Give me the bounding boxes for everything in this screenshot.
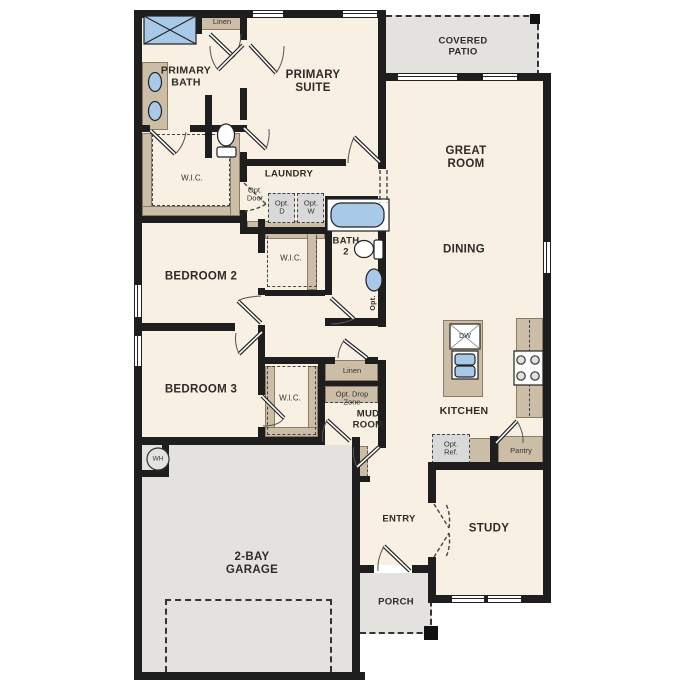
- wall: [325, 318, 378, 326]
- porch-post: [424, 626, 438, 640]
- label-kitchen: KITCHEN: [440, 406, 489, 418]
- label-opt-d: Opt. D: [275, 200, 289, 217]
- label-opt-ref: Opt. Ref.: [444, 441, 458, 458]
- window: [451, 595, 485, 603]
- wall: [325, 381, 378, 386]
- window: [543, 241, 551, 274]
- wall: [134, 672, 365, 680]
- wall: [258, 288, 265, 295]
- wall: [134, 437, 322, 445]
- label-bath-2: BATH 2: [333, 236, 360, 257]
- wall: [265, 290, 325, 296]
- wall: [240, 152, 247, 182]
- label-linen-hall: Linen: [343, 367, 361, 375]
- wall: [378, 10, 386, 169]
- wall: [142, 470, 169, 477]
- label-bedroom-3: BEDROOM 3: [165, 384, 237, 397]
- window: [252, 10, 284, 18]
- label-great-room: GREAT ROOM: [446, 145, 487, 171]
- wall: [134, 216, 247, 223]
- label-primary-bath: PRIMARY BATH: [161, 65, 211, 89]
- wall: [490, 436, 498, 464]
- label-laundry: LAUNDRY: [265, 170, 313, 181]
- label-linen-primary: Linen: [213, 18, 231, 26]
- label-wic-primary: W.I.C.: [181, 175, 203, 184]
- wall: [352, 476, 370, 482]
- label-porch: PORCH: [378, 598, 414, 609]
- wall: [378, 204, 386, 327]
- wall: [412, 565, 432, 573]
- wall: [352, 565, 374, 573]
- window: [134, 284, 142, 318]
- label-opt-door: Opt. Door: [247, 187, 263, 204]
- label-primary-suite: PRIMARY SUITE: [286, 69, 341, 95]
- label-water-heater: WH: [153, 455, 164, 462]
- wall: [240, 88, 247, 120]
- wall: [325, 196, 378, 202]
- wall: [543, 73, 551, 603]
- window: [482, 73, 518, 81]
- label-opt-drop-zone: Opt. Drop Zone: [336, 391, 369, 408]
- wall: [352, 437, 360, 680]
- label-entry: ENTRY: [382, 515, 415, 526]
- wic-primary-shelf-right: [230, 133, 240, 216]
- label-dishwasher: DW: [459, 333, 471, 341]
- window: [134, 335, 142, 367]
- wic-primary-shelf-bottom: [142, 206, 240, 216]
- label-opt-vanity: Opt.: [370, 295, 378, 310]
- garage-door-outline: [165, 599, 332, 672]
- wall: [240, 10, 247, 40]
- wall: [240, 159, 346, 166]
- wall: [240, 227, 332, 234]
- wall: [190, 125, 247, 132]
- window: [487, 595, 522, 603]
- label-covered-patio: COVERED PATIO: [438, 36, 487, 57]
- label-opt-w: Opt. W: [304, 200, 318, 217]
- label-pantry: Pantry: [510, 447, 532, 455]
- label-wic-bedroom-2: W.I.C.: [280, 255, 302, 264]
- wall: [318, 357, 325, 445]
- wic-primary-shelf-left: [142, 133, 152, 216]
- wic-primary-shelf-line: [152, 134, 230, 206]
- patio-post: [530, 14, 540, 24]
- kitchen-counter-line: [529, 320, 530, 416]
- wall: [325, 196, 332, 295]
- kitchen-island: [443, 320, 483, 397]
- label-mud-room: MUD ROOM: [353, 409, 384, 430]
- window: [342, 10, 378, 18]
- label-bedroom-2: BEDROOM 2: [165, 271, 237, 284]
- wall: [365, 357, 378, 364]
- wall: [428, 557, 436, 603]
- label-dining: DINING: [443, 244, 485, 257]
- wall: [134, 125, 150, 132]
- sliding-door: [397, 73, 458, 81]
- wall: [196, 14, 202, 34]
- label-study: STUDY: [469, 523, 509, 536]
- wall: [378, 360, 386, 448]
- label-garage: 2-BAY GARAGE: [226, 551, 278, 577]
- wall: [428, 470, 436, 503]
- label-wic-bedroom-3: W.I.C.: [279, 395, 301, 404]
- wall: [134, 323, 235, 331]
- floor-plan: Linen PRIMARY BATH PRIMARY SUITE COVERED…: [0, 0, 687, 687]
- wall: [258, 219, 265, 253]
